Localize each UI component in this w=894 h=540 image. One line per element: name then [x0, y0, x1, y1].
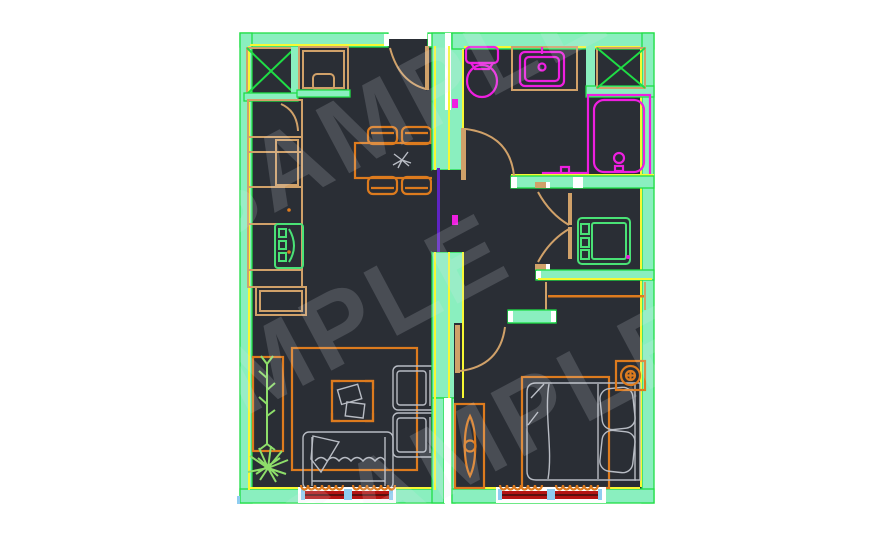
- window-cap: [389, 489, 393, 500]
- bedroom-window: [496, 485, 606, 503]
- jamb-cap: [536, 271, 541, 279]
- wall-segment: [642, 33, 654, 503]
- wall-gap: [444, 398, 452, 503]
- wall-accent-line: [448, 46, 450, 170]
- door-leaf: [455, 325, 460, 373]
- wall-accent-line: [434, 250, 436, 490]
- jamb-cap: [546, 182, 550, 188]
- jamb-cap: [508, 311, 513, 322]
- jamb-cap: [551, 311, 556, 322]
- door-leaf: [568, 227, 572, 259]
- living-room-window: [298, 485, 396, 503]
- wall-marker: [452, 215, 458, 225]
- wall-accent-line: [448, 250, 450, 398]
- right-unit: [452, 33, 654, 503]
- wardrobe-rod: [548, 295, 644, 298]
- door-jamb: [384, 34, 389, 46]
- wall-segment: [291, 47, 299, 94]
- wall-accent-line: [396, 487, 436, 489]
- wall-accent-line: [250, 487, 298, 489]
- left-unit: [237, 33, 444, 504]
- door-leaf: [425, 46, 429, 90]
- window-cap: [301, 489, 305, 500]
- wall-segment: [508, 310, 556, 323]
- opening-threshold-line: [437, 168, 440, 252]
- floor-plan-drawing: [0, 0, 894, 540]
- window-cap: [547, 489, 551, 500]
- floor-plan-canvas: SAMPLE SAMPLE SAMPLE: [0, 0, 894, 540]
- wall-opening: [432, 170, 464, 252]
- wall-accent-line: [434, 46, 436, 170]
- knob: [287, 250, 291, 254]
- knob: [287, 208, 291, 212]
- window-cap: [348, 489, 352, 500]
- window-cap: [344, 489, 348, 500]
- door-leaf: [568, 193, 572, 225]
- wall-segment: [432, 398, 444, 503]
- wall-segment: [297, 90, 350, 97]
- window-cap: [598, 489, 602, 500]
- wall-accent-line: [462, 252, 464, 398]
- wall-marker: [452, 99, 458, 108]
- wall-accent-line: [250, 44, 386, 46]
- door-jamb: [573, 177, 583, 188]
- door-leaf: [461, 128, 466, 180]
- window-cap: [551, 489, 555, 500]
- wall-marker: [237, 496, 240, 504]
- wall-segment: [240, 33, 252, 503]
- wall-accent-line: [538, 278, 652, 280]
- window-cap: [498, 489, 502, 500]
- wall-segment: [586, 40, 595, 87]
- jamb-cap: [546, 264, 550, 270]
- door-jamb: [511, 177, 517, 188]
- indicator-dot: [626, 255, 630, 259]
